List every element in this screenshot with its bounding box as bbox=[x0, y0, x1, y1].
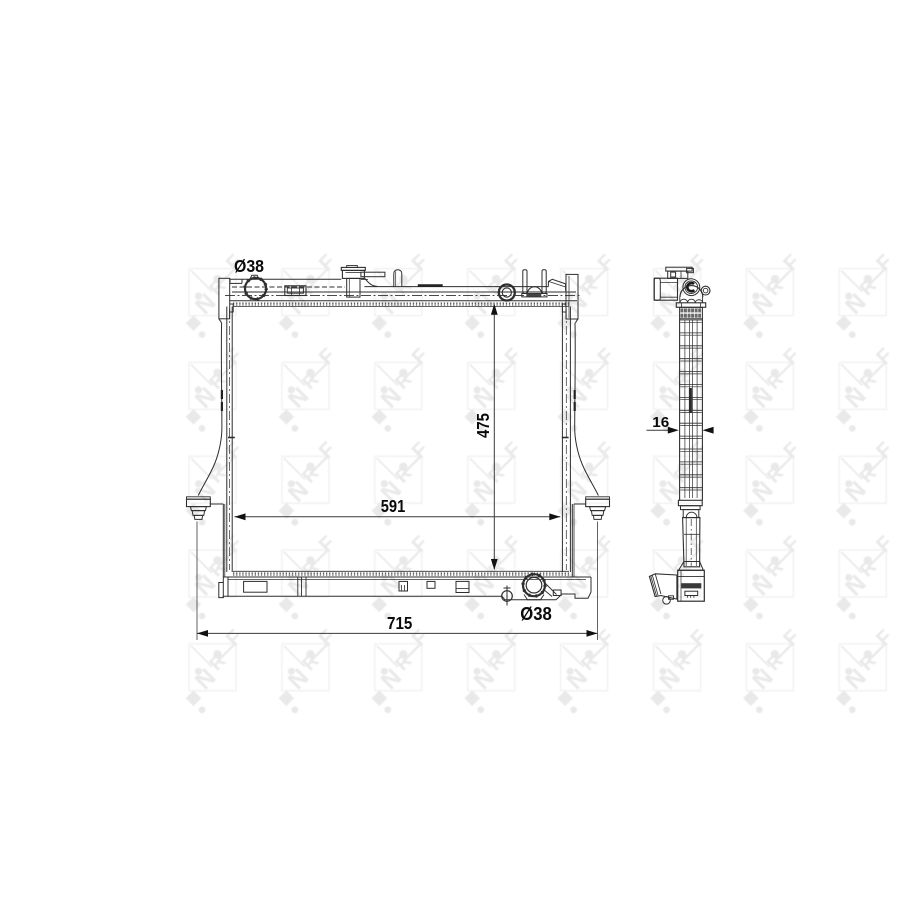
svg-text:16: 16 bbox=[652, 414, 669, 431]
svg-text:715: 715 bbox=[387, 613, 413, 633]
svg-text:Ø38: Ø38 bbox=[234, 256, 264, 276]
svg-text:475: 475 bbox=[473, 413, 493, 438]
svg-text:591: 591 bbox=[381, 496, 406, 516]
svg-text:Ø38: Ø38 bbox=[520, 604, 552, 624]
